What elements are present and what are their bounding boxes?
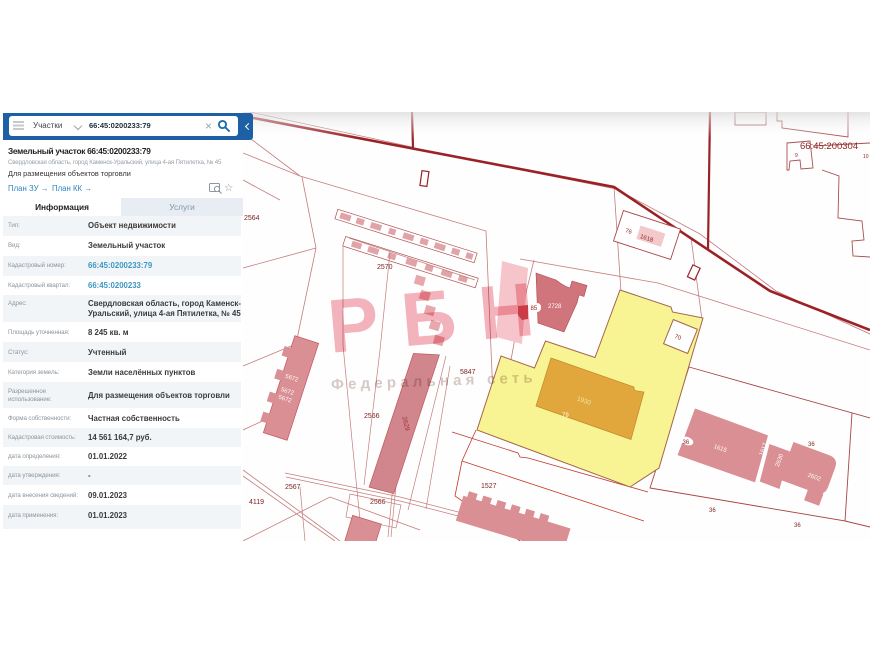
svg-text:2564: 2564 [244,215,260,222]
svg-text:2570: 2570 [377,264,393,271]
svg-text:66:45:200304: 66:45:200304 [800,141,858,152]
svg-text:36: 36 [683,440,690,446]
svg-text:79: 79 [562,413,569,419]
svg-text:1527: 1527 [481,483,497,490]
svg-text:10: 10 [863,154,869,160]
svg-text:36: 36 [709,508,716,514]
svg-text:36: 36 [794,523,801,529]
svg-text:36: 36 [808,442,815,448]
svg-text:9: 9 [795,153,798,159]
svg-text:4119: 4119 [249,499,264,506]
svg-text:2567: 2567 [285,484,301,491]
